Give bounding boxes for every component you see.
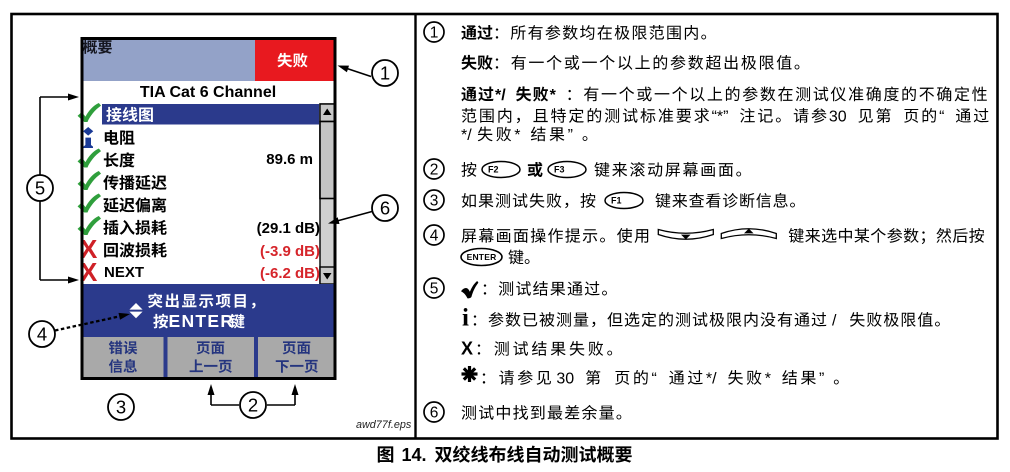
svg-text:”: ” — [568, 127, 573, 144]
svg-text:“*”: “*” — [712, 109, 729, 126]
svg-text:awd77f.eps: awd77f.eps — [356, 419, 412, 431]
svg-text:*/: */ — [495, 87, 506, 104]
svg-text:5: 5 — [35, 177, 45, 198]
svg-text:3: 3 — [430, 192, 439, 209]
svg-text:1: 1 — [380, 62, 390, 83]
svg-text:4: 4 — [37, 323, 47, 344]
svg-text:*/: */ — [706, 371, 717, 388]
svg-text:X: X — [461, 339, 473, 359]
svg-text:6: 6 — [380, 197, 390, 218]
svg-text:ENTER: ENTER — [169, 311, 235, 331]
svg-text:*: * — [550, 87, 557, 104]
svg-text:i: i — [462, 305, 469, 332]
svg-text:2: 2 — [248, 394, 258, 415]
svg-text:*: * — [765, 371, 771, 388]
svg-text:(-3.9 dB): (-3.9 dB) — [260, 243, 320, 260]
svg-text:F3: F3 — [554, 165, 565, 175]
svg-text:ENTER: ENTER — [467, 252, 497, 262]
svg-text:TIA Cat 6 Channel: TIA Cat 6 Channel — [140, 84, 276, 101]
svg-text:F1: F1 — [611, 196, 622, 206]
svg-text:1: 1 — [430, 24, 439, 41]
svg-text:5: 5 — [430, 280, 439, 297]
svg-text:*/: */ — [461, 127, 472, 144]
svg-text:F2: F2 — [488, 165, 499, 175]
svg-text:14.: 14. — [402, 445, 427, 465]
svg-text:6: 6 — [430, 404, 439, 421]
svg-text:/: / — [832, 313, 837, 330]
svg-text:“: “ — [652, 371, 657, 388]
svg-text:3: 3 — [116, 396, 126, 417]
svg-text:2: 2 — [430, 161, 439, 178]
svg-text:30: 30 — [829, 109, 847, 126]
svg-text:4: 4 — [430, 227, 439, 244]
svg-text:*: * — [514, 127, 520, 144]
svg-text:(-6.2 dB): (-6.2 dB) — [260, 265, 320, 282]
svg-text:”: ” — [819, 371, 824, 388]
svg-text:(29.1 dB): (29.1 dB) — [257, 220, 320, 237]
svg-text:89.6 m: 89.6 m — [266, 151, 313, 168]
svg-text:“: “ — [939, 109, 944, 126]
svg-text:NEXT: NEXT — [104, 264, 144, 281]
svg-text:30: 30 — [556, 371, 574, 388]
